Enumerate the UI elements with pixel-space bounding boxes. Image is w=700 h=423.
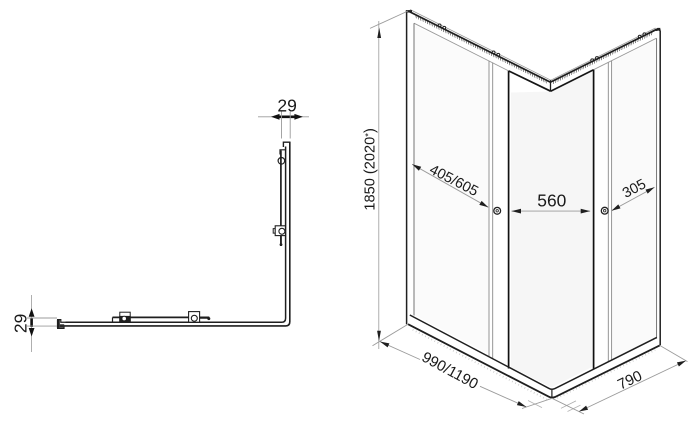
svg-text:1850 (2020*): 1850 (2020*) bbox=[362, 128, 378, 210]
svg-text:560: 560 bbox=[537, 190, 566, 210]
svg-text:29: 29 bbox=[277, 95, 296, 115]
svg-text:29: 29 bbox=[10, 314, 30, 333]
